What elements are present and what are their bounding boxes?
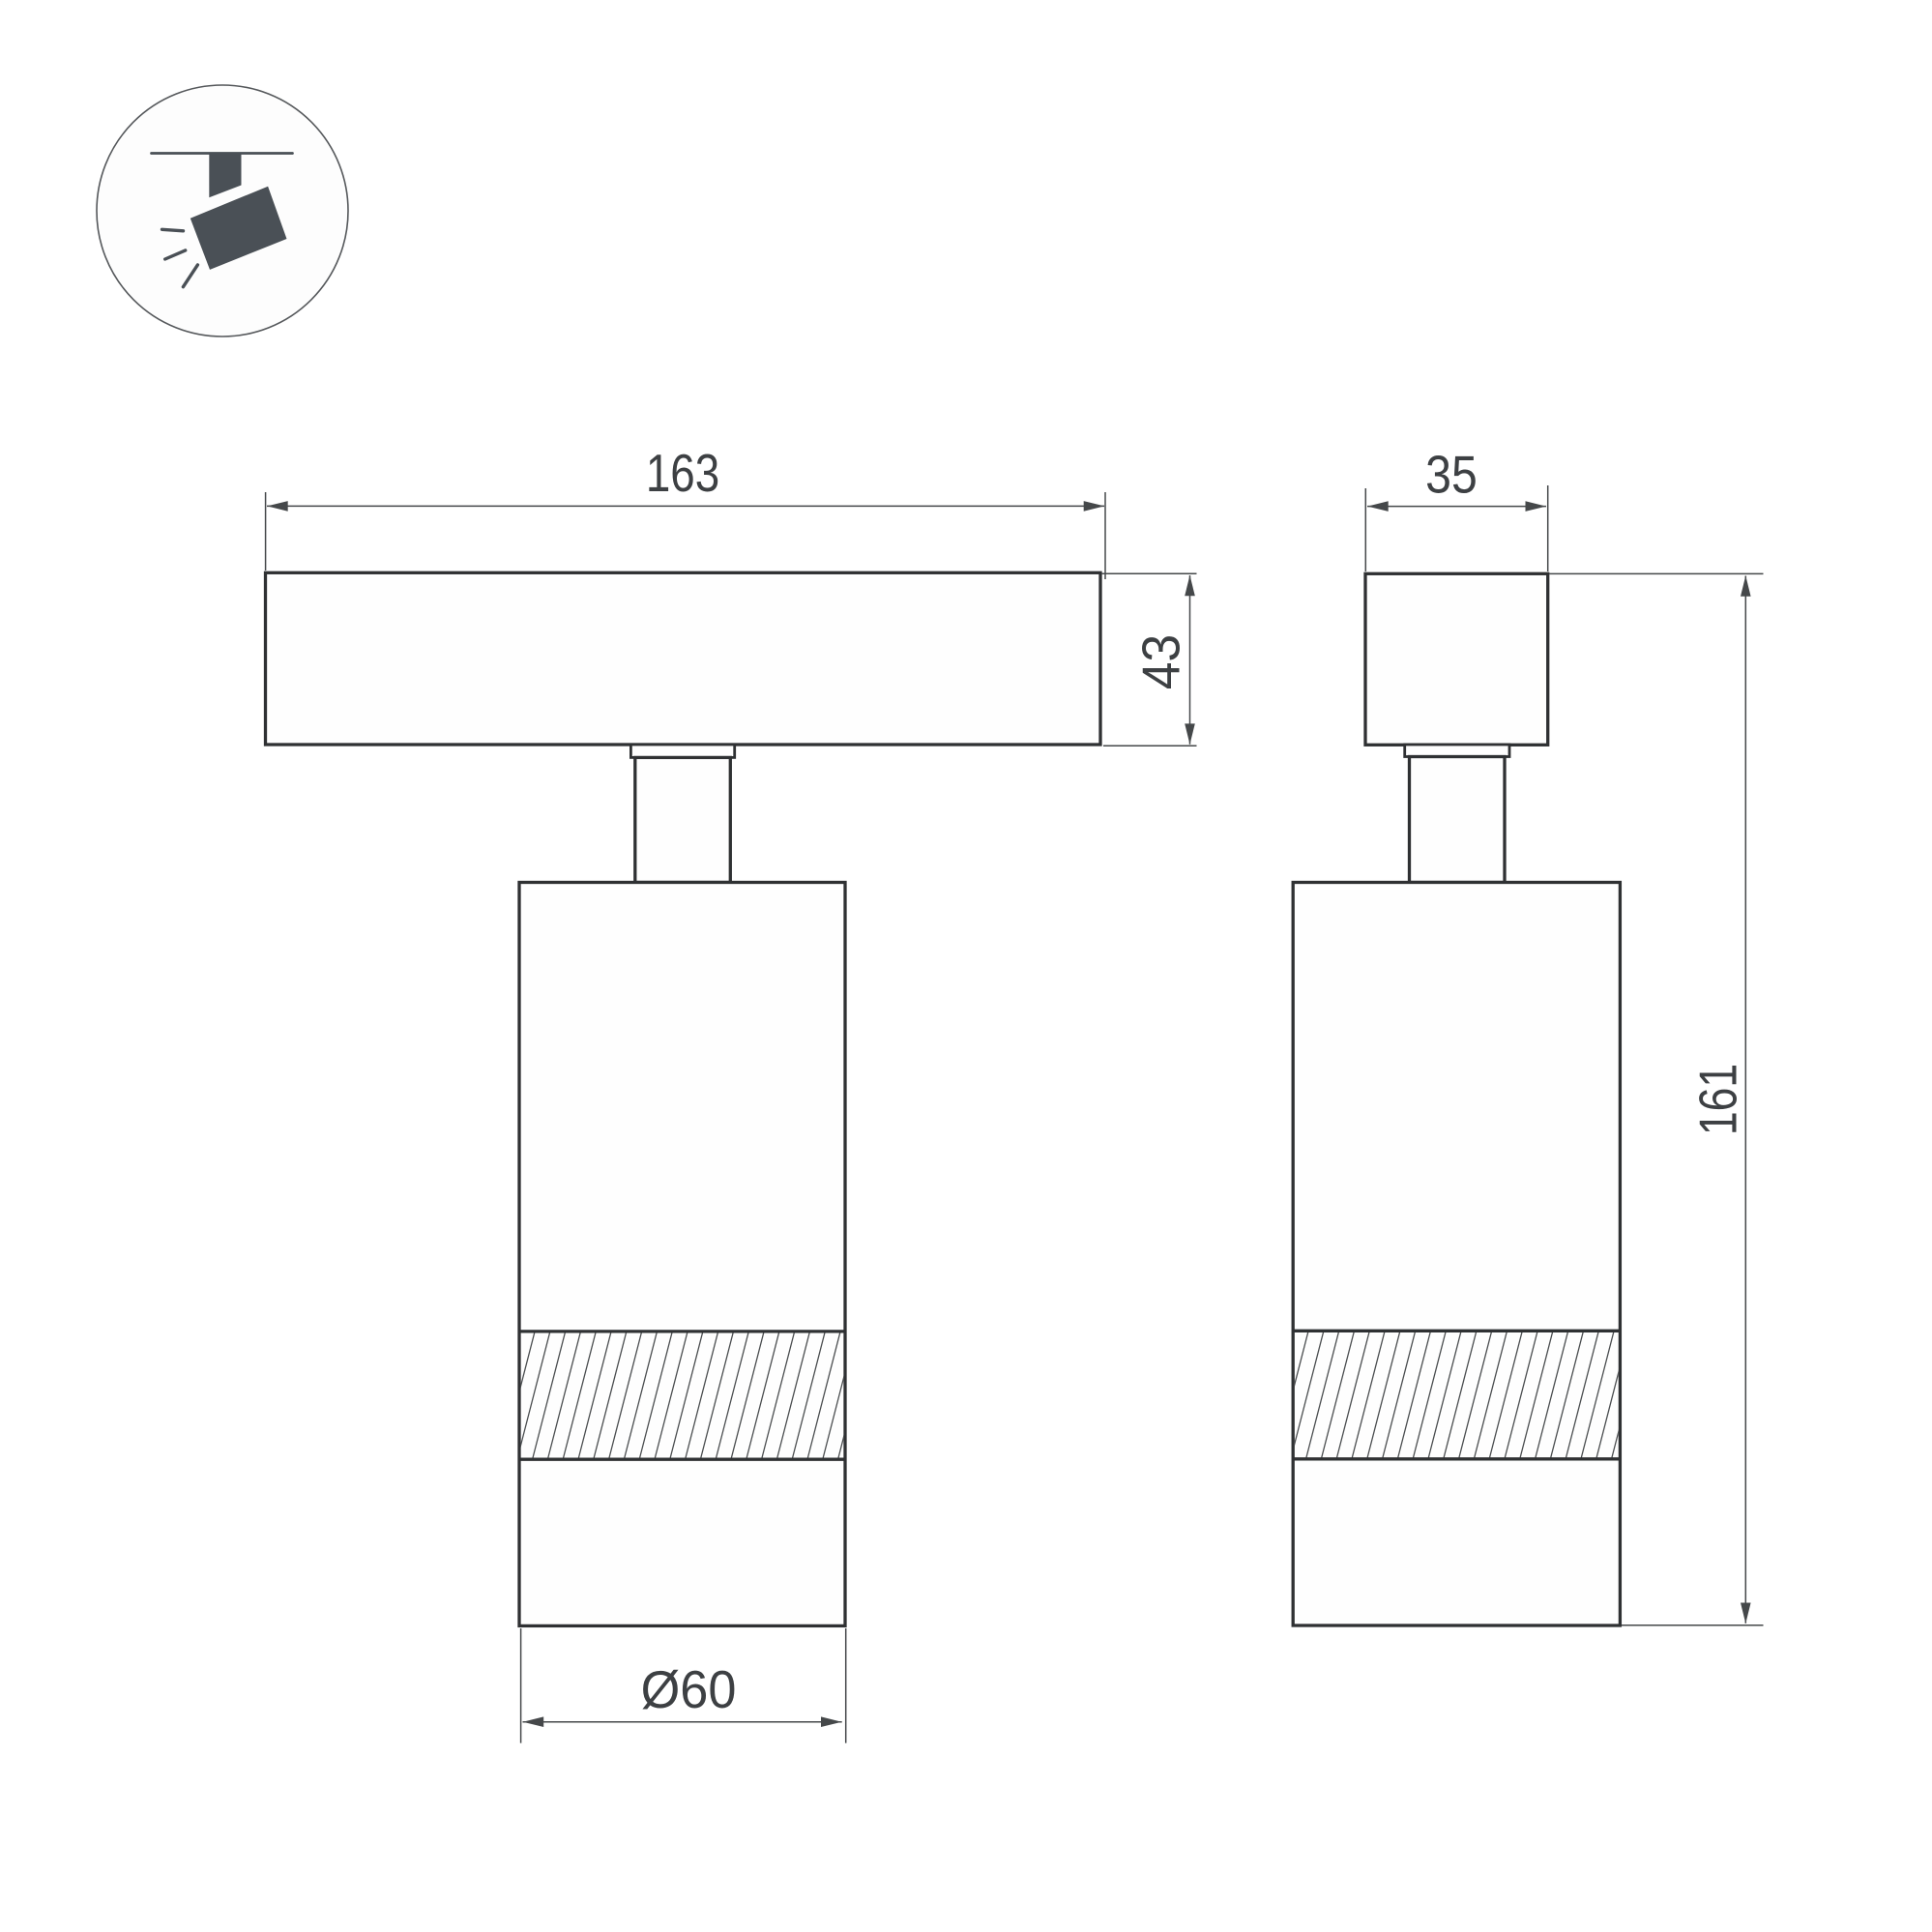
svg-text:43: 43: [1132, 634, 1191, 689]
svg-text:Ø60: Ø60: [641, 1660, 737, 1720]
svg-text:163: 163: [646, 443, 719, 503]
svg-text:161: 161: [1688, 1064, 1747, 1135]
svg-text:35: 35: [1425, 445, 1478, 504]
